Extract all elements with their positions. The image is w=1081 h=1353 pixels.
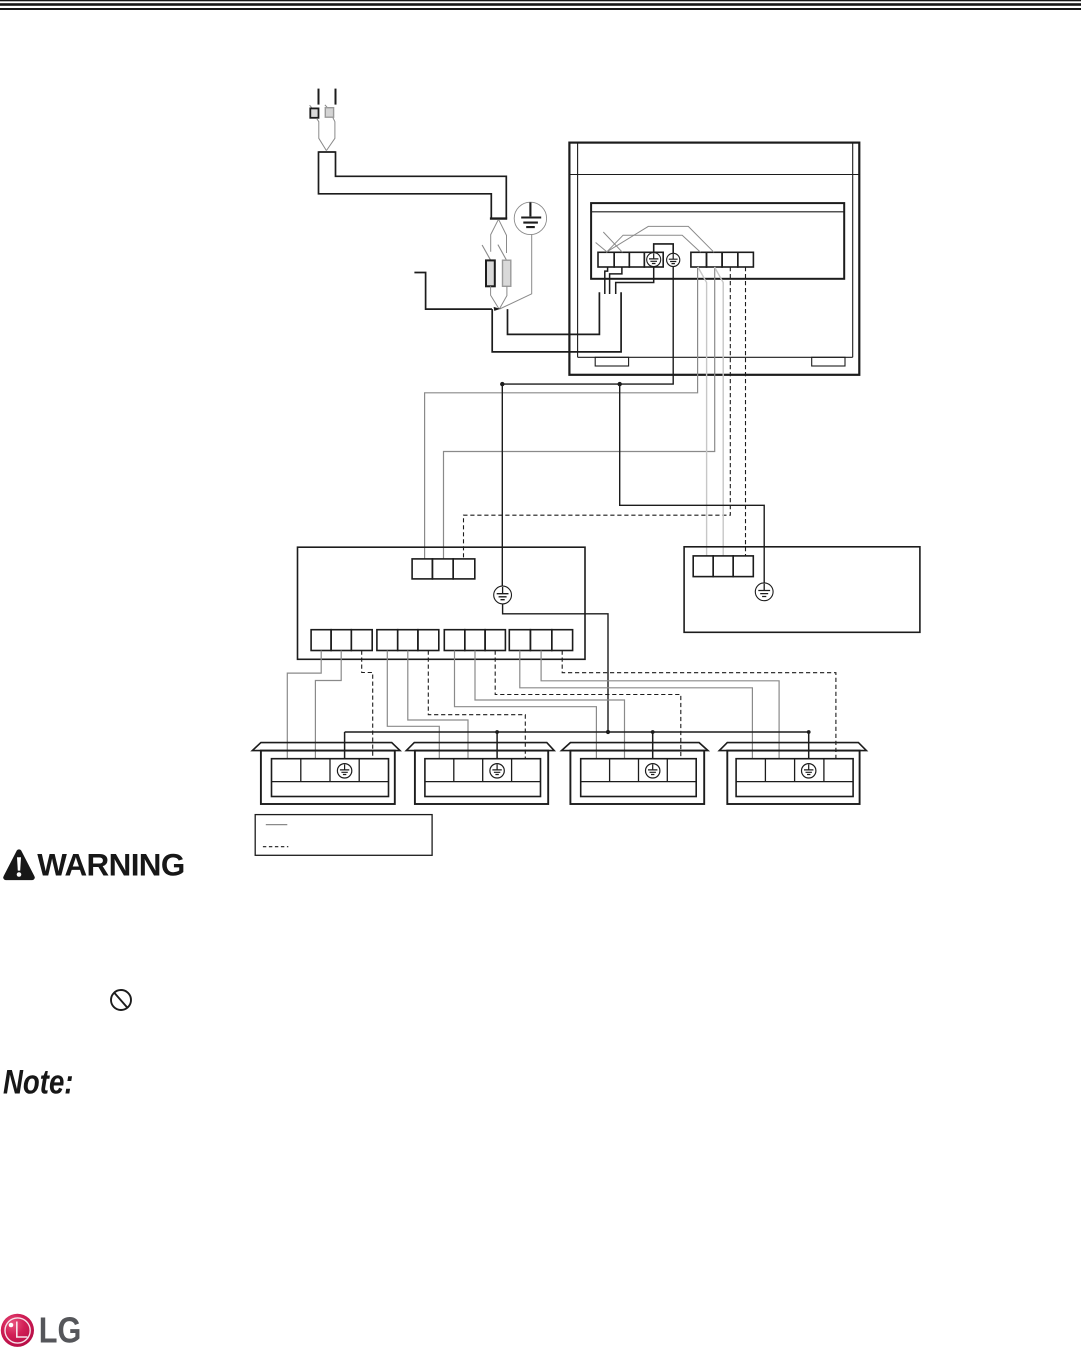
- svg-text:Note:: Note:: [3, 1062, 74, 1101]
- svg-text:WARNING: WARNING: [37, 848, 185, 883]
- svg-text:LG: LG: [39, 1310, 82, 1351]
